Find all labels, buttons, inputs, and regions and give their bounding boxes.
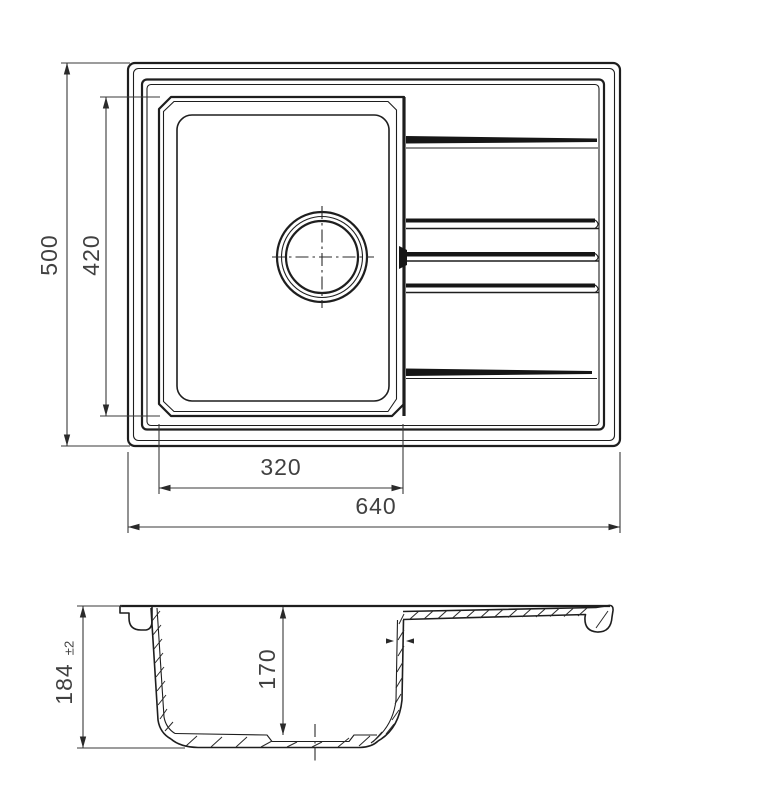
groove-ridge-1-endcap [595, 220, 598, 229]
groove-ridge-3-endcap [595, 285, 598, 293]
groove-top-band [406, 136, 597, 144]
side-left-wall [151, 608, 175, 739]
drainboard-grooves [399, 136, 599, 379]
side-bowl-bottom [171, 724, 378, 764]
wall-thickness-tick-left [386, 638, 394, 643]
dim-overall-height: 184 ±2 [51, 606, 185, 748]
dim-bowl-depth: 170 [254, 607, 286, 735]
dim-bowl-length: 420 [78, 97, 160, 416]
sink-drawing-canvas: 500 420 320 640 [0, 0, 764, 800]
dim-640-arrow-right [609, 524, 621, 530]
dim-500-arrow-up [64, 63, 70, 75]
dim-184-arrow-up [80, 606, 86, 618]
side-view: 184 ±2 170 [51, 605, 613, 764]
dim-420-label: 420 [78, 234, 104, 275]
drain-circle [272, 206, 374, 308]
overflow-channel-mouth [399, 246, 407, 269]
technical-drawing-page: 500 420 320 640 [0, 0, 764, 800]
dim-170-arrow-up [280, 607, 286, 619]
side-right-wall [371, 614, 414, 743]
wall-thickness-tick-right [406, 638, 414, 643]
dim-320-arrow-right [392, 485, 404, 491]
dim-640-arrow-left [128, 524, 140, 530]
groove-ridge-2-endcap [595, 254, 598, 262]
side-slab-outline [403, 605, 613, 632]
dim-420-arrow-up [103, 97, 109, 109]
side-drainboard-slab [403, 605, 613, 632]
top-view: 500 420 320 640 [36, 63, 620, 533]
dim-overall-width: 640 [128, 452, 620, 533]
dim-bowl-width: 320 [159, 424, 403, 494]
groove-ridge-2-thick [406, 252, 595, 257]
dim-320-label: 320 [260, 454, 301, 480]
dim-640-label: 640 [355, 493, 396, 519]
dim-184-arrow-down [80, 737, 86, 749]
dim-184-label: 184 [51, 663, 77, 704]
groove-bottom-band [406, 369, 592, 377]
dim-500-label: 500 [36, 234, 62, 275]
side-left-clip [120, 606, 152, 630]
groove-ridge-3-thick [406, 284, 595, 288]
dim-170-arrow-down [280, 724, 286, 736]
groove-ridge-1-thick [406, 219, 595, 223]
dim-184-tolerance-label: ±2 [61, 641, 76, 655]
dim-500-arrow-down [64, 435, 70, 447]
dim-170-label: 170 [254, 648, 280, 689]
dim-420-arrow-down [103, 405, 109, 417]
dim-320-arrow-left [159, 485, 171, 491]
